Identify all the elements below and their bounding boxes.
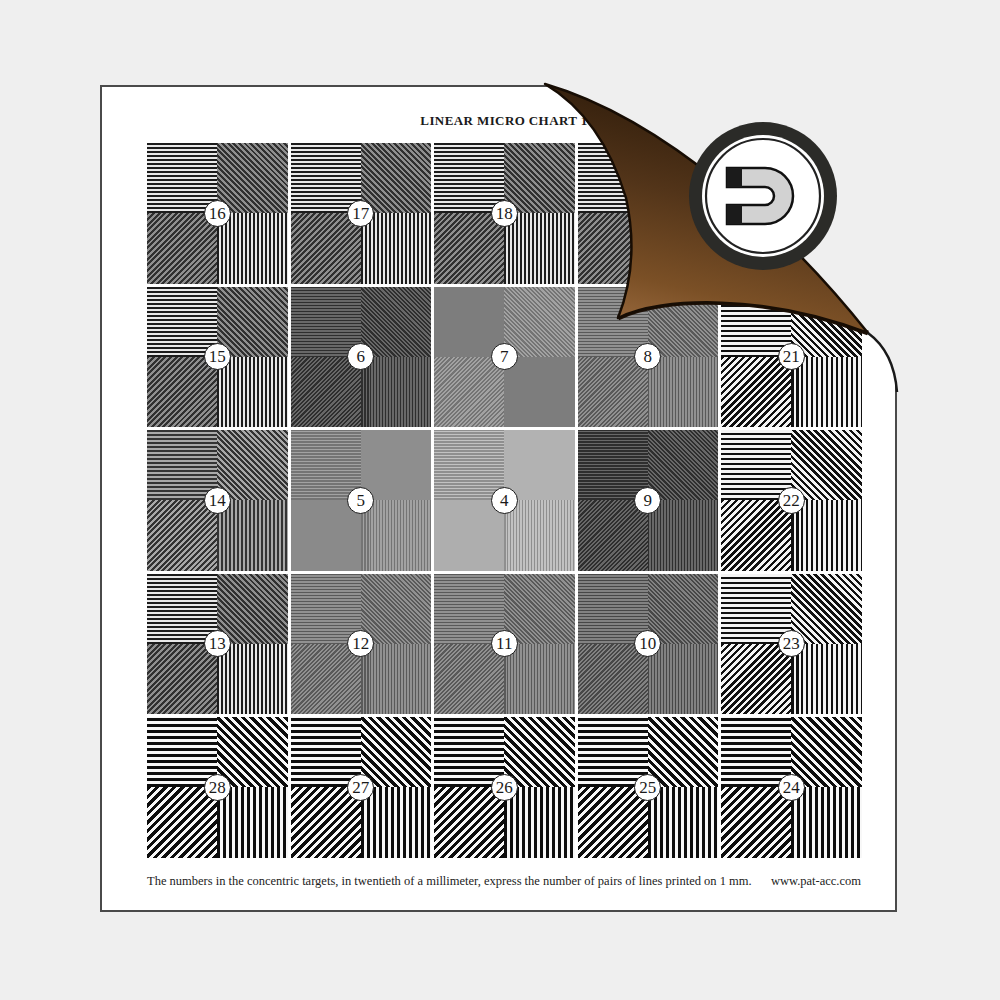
pattern-cell-r0c0: 16 bbox=[147, 143, 288, 284]
quadrant-horizontal-lines bbox=[721, 574, 791, 644]
target-number: 18 bbox=[491, 200, 518, 227]
quadrant-horizontal-lines bbox=[291, 717, 361, 787]
quadrant-diagonal-backslash-lines bbox=[361, 430, 431, 500]
quadrant-horizontal-lines bbox=[721, 717, 791, 787]
pattern-cell-r0c2: 18 bbox=[434, 143, 575, 284]
quadrant-vertical-lines bbox=[648, 787, 718, 857]
quadrant-diagonal-slash-lines bbox=[721, 500, 791, 570]
page-title: LINEAR MICRO CHART 1 bbox=[147, 113, 861, 129]
quadrant-diagonal-backslash-lines bbox=[504, 717, 574, 787]
pattern-cell-r2c4: 22 bbox=[721, 430, 862, 571]
quadrant-diagonal-backslash-lines bbox=[217, 717, 287, 787]
quadrant-diagonal-slash-lines bbox=[578, 213, 648, 283]
quadrant-horizontal-lines bbox=[578, 717, 648, 787]
quadrant-diagonal-slash-lines bbox=[147, 500, 217, 570]
target-number: 26 bbox=[491, 774, 518, 801]
quadrant-diagonal-slash-lines bbox=[434, 787, 504, 857]
target-number: 11 bbox=[491, 630, 518, 657]
chart-sheet: LINEAR MICRO CHART 1 1617181567821145492… bbox=[100, 85, 897, 912]
quadrant-diagonal-backslash-lines bbox=[504, 574, 574, 644]
pattern-cell-r1c3: 8 bbox=[578, 287, 719, 428]
quadrant-diagonal-slash-lines bbox=[578, 787, 648, 857]
quadrant-diagonal-backslash-lines bbox=[361, 574, 431, 644]
target-number: 16 bbox=[204, 200, 231, 227]
quadrant-diagonal-backslash-lines bbox=[791, 717, 861, 787]
quadrant-diagonal-slash-lines bbox=[721, 213, 791, 283]
quadrant-diagonal-backslash-lines bbox=[217, 430, 287, 500]
target-number: 27 bbox=[347, 774, 374, 801]
pattern-cell-r1c1: 6 bbox=[291, 287, 432, 428]
pattern-cell-r1c2: 7 bbox=[434, 287, 575, 428]
quadrant-diagonal-slash-lines bbox=[291, 500, 361, 570]
quadrant-horizontal-lines bbox=[291, 430, 361, 500]
quadrant-vertical-lines bbox=[217, 787, 287, 857]
quadrant-diagonal-backslash-lines bbox=[504, 287, 574, 357]
quadrant-horizontal-lines bbox=[434, 574, 504, 644]
quadrant-diagonal-backslash-lines bbox=[361, 717, 431, 787]
pattern-cell-r1c0: 15 bbox=[147, 287, 288, 428]
quadrant-horizontal-lines bbox=[147, 574, 217, 644]
target-number: 15 bbox=[204, 343, 231, 370]
quadrant-diagonal-backslash-lines bbox=[648, 717, 718, 787]
caption-row: The numbers in the concentric targets, i… bbox=[147, 874, 861, 889]
quadrant-diagonal-slash-lines bbox=[291, 213, 361, 283]
quadrant-horizontal-lines bbox=[434, 430, 504, 500]
pattern-cell-r4c2: 26 bbox=[434, 717, 575, 858]
quadrant-horizontal-lines bbox=[434, 717, 504, 787]
quadrant-diagonal-slash-lines bbox=[578, 500, 648, 570]
target-number: 9 bbox=[634, 487, 661, 514]
quadrant-vertical-lines bbox=[361, 357, 431, 427]
quadrant-vertical-lines bbox=[791, 357, 861, 427]
quadrant-diagonal-slash-lines bbox=[721, 644, 791, 714]
target-number: 5 bbox=[347, 487, 374, 514]
quadrant-horizontal-lines bbox=[147, 287, 217, 357]
pattern-cell-r3c2: 11 bbox=[434, 574, 575, 715]
quadrant-vertical-lines bbox=[217, 500, 287, 570]
quadrant-diagonal-slash-lines bbox=[147, 644, 217, 714]
target-number: 14 bbox=[204, 487, 231, 514]
quadrant-diagonal-backslash-lines bbox=[217, 143, 287, 213]
quadrant-vertical-lines bbox=[648, 357, 718, 427]
pattern-cell-r3c4: 23 bbox=[721, 574, 862, 715]
quadrant-diagonal-backslash-lines bbox=[791, 430, 861, 500]
pattern-cell-r0c4 bbox=[721, 143, 862, 284]
quadrant-diagonal-backslash-lines bbox=[361, 143, 431, 213]
quadrant-diagonal-slash-lines bbox=[721, 787, 791, 857]
pattern-cell-r0c1: 17 bbox=[291, 143, 432, 284]
quadrant-vertical-lines bbox=[504, 644, 574, 714]
quadrant-horizontal-lines bbox=[434, 287, 504, 357]
quadrant-vertical-lines bbox=[361, 500, 431, 570]
website-text: www.pat-acc.com bbox=[771, 874, 861, 889]
quadrant-vertical-lines bbox=[504, 213, 574, 283]
quadrant-diagonal-backslash-lines bbox=[504, 430, 574, 500]
quadrant-vertical-lines bbox=[791, 500, 861, 570]
pattern-cell-r0c3 bbox=[578, 143, 719, 284]
quadrant-diagonal-slash-lines bbox=[147, 357, 217, 427]
quadrant-vertical-lines bbox=[217, 357, 287, 427]
quadrant-diagonal-backslash-lines bbox=[648, 143, 718, 213]
quadrant-diagonal-slash-lines bbox=[291, 787, 361, 857]
pattern-cell-r4c3: 25 bbox=[578, 717, 719, 858]
quadrant-vertical-lines bbox=[217, 213, 287, 283]
quadrant-horizontal-lines bbox=[147, 430, 217, 500]
target-number: 25 bbox=[634, 774, 661, 801]
caption-text: The numbers in the concentric targets, i… bbox=[147, 874, 752, 889]
target-number: 23 bbox=[778, 630, 805, 657]
quadrant-diagonal-slash-lines bbox=[147, 787, 217, 857]
quadrant-diagonal-backslash-lines bbox=[361, 287, 431, 357]
quadrant-vertical-lines bbox=[361, 644, 431, 714]
pattern-cell-r2c3: 9 bbox=[578, 430, 719, 571]
quadrant-diagonal-slash-lines bbox=[147, 213, 217, 283]
quadrant-diagonal-backslash-lines bbox=[791, 574, 861, 644]
quadrant-diagonal-backslash-lines bbox=[648, 287, 718, 357]
quadrant-horizontal-lines bbox=[434, 143, 504, 213]
quadrant-horizontal-lines bbox=[147, 717, 217, 787]
quadrant-horizontal-lines bbox=[721, 287, 791, 357]
quadrant-horizontal-lines bbox=[721, 430, 791, 500]
quadrant-diagonal-backslash-lines bbox=[217, 287, 287, 357]
quadrant-vertical-lines bbox=[791, 213, 861, 283]
pattern-cell-r4c0: 28 bbox=[147, 717, 288, 858]
target-number: 4 bbox=[491, 487, 518, 514]
pattern-cell-r2c1: 5 bbox=[291, 430, 432, 571]
quadrant-vertical-lines bbox=[504, 500, 574, 570]
pattern-cell-r3c1: 12 bbox=[291, 574, 432, 715]
quadrant-horizontal-lines bbox=[721, 143, 791, 213]
quadrant-vertical-lines bbox=[504, 787, 574, 857]
quadrant-horizontal-lines bbox=[578, 143, 648, 213]
target-number: 22 bbox=[778, 487, 805, 514]
quadrant-diagonal-slash-lines bbox=[434, 213, 504, 283]
quadrant-vertical-lines bbox=[504, 357, 574, 427]
quadrant-diagonal-slash-lines bbox=[291, 644, 361, 714]
quadrant-vertical-lines bbox=[361, 787, 431, 857]
pattern-cell-r2c0: 14 bbox=[147, 430, 288, 571]
quadrant-diagonal-slash-lines bbox=[578, 357, 648, 427]
quadrant-vertical-lines bbox=[791, 787, 861, 857]
pattern-cell-r1c4: 21 bbox=[721, 287, 862, 428]
pattern-cell-r4c1: 27 bbox=[291, 717, 432, 858]
quadrant-diagonal-backslash-lines bbox=[791, 143, 861, 213]
quadrant-horizontal-lines bbox=[578, 430, 648, 500]
target-number: 21 bbox=[778, 343, 805, 370]
quadrant-vertical-lines bbox=[648, 500, 718, 570]
quadrant-diagonal-backslash-lines bbox=[791, 287, 861, 357]
quadrant-diagonal-slash-lines bbox=[291, 357, 361, 427]
quadrant-diagonal-backslash-lines bbox=[504, 143, 574, 213]
quadrant-vertical-lines bbox=[648, 213, 718, 283]
quadrant-vertical-lines bbox=[361, 213, 431, 283]
pattern-cell-r3c3: 10 bbox=[578, 574, 719, 715]
target-number: 7 bbox=[491, 343, 518, 370]
quadrant-diagonal-slash-lines bbox=[434, 644, 504, 714]
quadrant-horizontal-lines bbox=[147, 143, 217, 213]
quadrant-vertical-lines bbox=[648, 644, 718, 714]
target-number: 13 bbox=[204, 630, 231, 657]
pattern-cell-r2c2: 4 bbox=[434, 430, 575, 571]
quadrant-diagonal-backslash-lines bbox=[648, 574, 718, 644]
quadrant-vertical-lines bbox=[791, 644, 861, 714]
pattern-cell-r3c0: 13 bbox=[147, 574, 288, 715]
quadrant-diagonal-backslash-lines bbox=[648, 430, 718, 500]
pattern-cell-r4c4: 24 bbox=[721, 717, 862, 858]
target-number: 17 bbox=[347, 200, 374, 227]
quadrant-diagonal-slash-lines bbox=[578, 644, 648, 714]
quadrant-vertical-lines bbox=[217, 644, 287, 714]
target-number: 28 bbox=[204, 774, 231, 801]
quadrant-horizontal-lines bbox=[291, 143, 361, 213]
quadrant-diagonal-backslash-lines bbox=[217, 574, 287, 644]
quadrant-diagonal-slash-lines bbox=[721, 357, 791, 427]
quadrant-diagonal-slash-lines bbox=[434, 500, 504, 570]
quadrant-diagonal-slash-lines bbox=[434, 357, 504, 427]
target-number: 24 bbox=[778, 774, 805, 801]
